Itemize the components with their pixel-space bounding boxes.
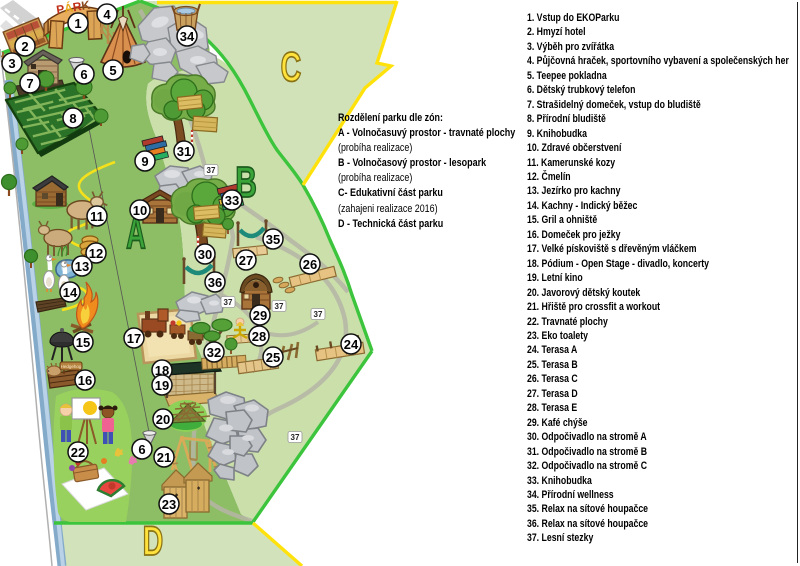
svg-text:3: 3 bbox=[8, 56, 15, 71]
svg-text:9: 9 bbox=[141, 154, 148, 169]
svg-text:19: 19 bbox=[155, 378, 169, 393]
svg-text:8: 8 bbox=[69, 111, 76, 126]
svg-text:15: 15 bbox=[76, 335, 90, 350]
svg-text:37: 37 bbox=[275, 302, 284, 311]
svg-text:14: 14 bbox=[63, 285, 78, 300]
svg-text:10: 10 bbox=[133, 203, 147, 218]
svg-text:24: 24 bbox=[344, 337, 359, 352]
svg-text:37: 37 bbox=[314, 310, 323, 319]
svg-text:20: 20 bbox=[156, 412, 170, 427]
svg-text:17: 17 bbox=[127, 331, 141, 346]
svg-text:1: 1 bbox=[74, 16, 81, 31]
svg-text:27: 27 bbox=[239, 253, 253, 268]
svg-text:37: 37 bbox=[224, 298, 233, 307]
svg-text:7: 7 bbox=[26, 76, 33, 91]
svg-text:34: 34 bbox=[180, 29, 195, 44]
svg-text:32: 32 bbox=[207, 345, 221, 360]
svg-text:23: 23 bbox=[162, 497, 176, 512]
svg-text:4: 4 bbox=[103, 7, 111, 22]
svg-text:28: 28 bbox=[252, 329, 266, 344]
svg-text:5: 5 bbox=[109, 63, 116, 78]
svg-text:30: 30 bbox=[198, 247, 212, 262]
svg-text:33: 33 bbox=[225, 193, 239, 208]
svg-text:C: C bbox=[281, 42, 302, 90]
svg-text:26: 26 bbox=[303, 257, 317, 272]
svg-text:21: 21 bbox=[157, 450, 171, 465]
svg-text:35: 35 bbox=[266, 232, 280, 247]
svg-text:31: 31 bbox=[177, 144, 191, 159]
svg-text:25: 25 bbox=[266, 350, 280, 365]
svg-text:6: 6 bbox=[138, 442, 145, 457]
svg-text:13: 13 bbox=[75, 259, 89, 274]
svg-text:22: 22 bbox=[71, 445, 85, 460]
svg-text:16: 16 bbox=[78, 373, 92, 388]
svg-text:12: 12 bbox=[89, 246, 103, 261]
svg-text:11: 11 bbox=[90, 209, 104, 224]
svg-text:29: 29 bbox=[253, 308, 267, 323]
svg-text:37: 37 bbox=[207, 166, 216, 175]
svg-text:37: 37 bbox=[291, 433, 300, 442]
svg-text:36: 36 bbox=[208, 275, 222, 290]
svg-text:2: 2 bbox=[21, 39, 28, 54]
svg-text:Hedgehog: Hedgehog bbox=[61, 364, 82, 369]
svg-text:D: D bbox=[143, 516, 164, 564]
svg-text:6: 6 bbox=[80, 67, 87, 82]
